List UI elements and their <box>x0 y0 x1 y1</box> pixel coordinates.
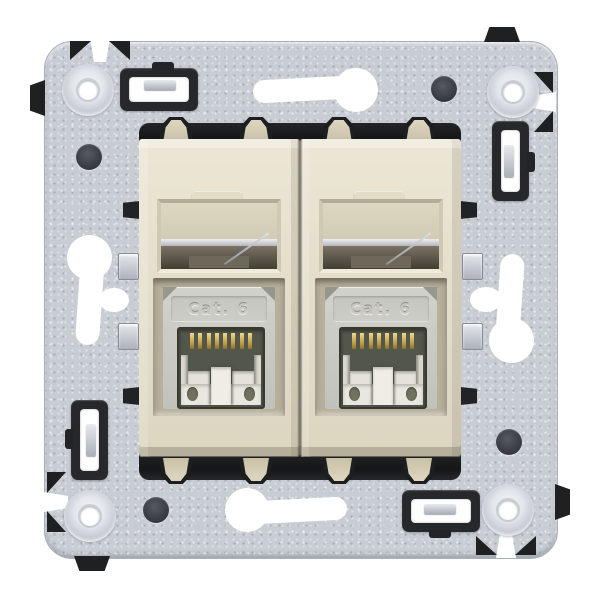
category-band: Cat. 6 <box>333 296 429 322</box>
socket-hole <box>244 387 255 401</box>
claw-triangle <box>109 41 130 60</box>
contact-pin <box>393 333 397 349</box>
screw-hole-bottom-left <box>64 490 116 542</box>
socket-hole <box>406 387 417 401</box>
contact-pin <box>352 333 356 349</box>
side-metal-clip <box>462 323 483 350</box>
screw-hole-center <box>503 82 523 102</box>
side-wedge <box>123 387 140 405</box>
shutter-window <box>319 199 443 273</box>
clip-latch <box>504 145 514 177</box>
contact-pin <box>240 333 244 349</box>
side-wedge <box>460 387 477 405</box>
screw-hole-center <box>80 506 100 526</box>
rubber-bumper <box>496 429 522 455</box>
shutter-cavity <box>161 246 277 269</box>
dust-shutter-flap <box>323 203 439 239</box>
clip-nub <box>527 152 535 172</box>
claw-triangle <box>476 536 497 555</box>
fixing-claw <box>159 458 193 484</box>
clip-frame-top-left <box>120 68 198 111</box>
side-wedge <box>460 201 477 219</box>
edge-tab-right <box>555 484 570 520</box>
screw-hole-center <box>498 500 518 520</box>
clip-nub <box>65 429 73 449</box>
contact-pin <box>248 333 252 349</box>
rubber-bumper <box>143 497 169 523</box>
claw-triangle <box>70 41 91 60</box>
corner-claw-notch-bottom-right <box>476 534 536 558</box>
latch-channel <box>373 367 393 405</box>
gold-contacts <box>190 333 252 349</box>
category-band: Cat. 6 <box>171 296 267 322</box>
contact-pin <box>377 333 381 349</box>
side-metal-clip <box>118 253 139 280</box>
contact-pin <box>198 333 202 349</box>
claw-triangle <box>47 472 66 493</box>
screw-hole-top-left <box>62 64 114 116</box>
edge-tab-left <box>30 80 45 116</box>
fixing-claw <box>239 458 273 484</box>
contact-pin <box>402 333 406 349</box>
contact-pin <box>369 333 373 349</box>
jack-recess: Cat. 6 <box>153 278 285 416</box>
clip-frame-bottom-right <box>402 490 480 532</box>
product-photo-rj45-double-socket: Cat. 6 <box>0 0 600 600</box>
screw-hole-bottom-right <box>482 484 534 536</box>
contact-pin <box>360 333 364 349</box>
edge-tab-top <box>484 27 520 42</box>
rj45-jack-front: Cat. 6 <box>163 287 275 409</box>
dust-shutter-flap <box>161 203 277 239</box>
notch-cutout <box>90 38 110 62</box>
contact-pin <box>385 333 389 349</box>
contact-pin <box>215 333 219 349</box>
keyhole-bulge-left <box>67 235 112 280</box>
side-wedge <box>123 201 140 219</box>
clip-frame-bottom-left <box>71 400 108 480</box>
jack-recess: Cat. 6 <box>315 278 447 416</box>
module-seam <box>297 139 303 457</box>
claw-triangle <box>515 536 536 555</box>
category-label: Cat. 6 <box>188 300 250 318</box>
shutter-cavity <box>323 246 439 269</box>
rj45-socket-opening <box>339 327 427 409</box>
keyhole-bulge-right <box>489 318 534 363</box>
latch-channel <box>211 367 231 405</box>
screw-hole-center <box>78 80 98 100</box>
rj45-jack-front: Cat. 6 <box>325 287 437 409</box>
rubber-bumper <box>431 76 457 102</box>
notch-cutout <box>496 534 516 558</box>
screw-hole-top-right <box>487 66 539 118</box>
edge-tab-bottom <box>74 556 110 571</box>
side-metal-clip <box>462 253 483 280</box>
keyhole-bulge-bottom <box>225 488 269 532</box>
side-metal-clip <box>118 323 139 350</box>
contact-pin <box>223 333 227 349</box>
clip-latch <box>424 504 456 514</box>
cavity-block <box>351 256 411 268</box>
clip-latch <box>144 80 176 90</box>
contact-pin <box>190 333 194 349</box>
oval-hole-right <box>470 287 502 312</box>
oval-hole-left <box>99 288 129 312</box>
claw-triangle <box>534 111 553 132</box>
contact-pin <box>231 333 235 349</box>
fixing-claw <box>402 458 436 484</box>
contact-pin <box>207 333 211 349</box>
cavity-block <box>189 256 249 268</box>
category-label: Cat. 6 <box>350 300 412 318</box>
gold-contacts <box>352 333 414 349</box>
keyhole-bulge-top <box>334 68 378 112</box>
clip-latch <box>86 424 96 456</box>
clip-frame-top-right <box>492 121 529 201</box>
rubber-bumper <box>76 144 102 170</box>
clip-nub <box>429 530 451 538</box>
socket-hole <box>349 387 360 401</box>
clip-nub <box>152 62 174 70</box>
socket-hole <box>187 387 198 401</box>
contact-pin <box>410 333 414 349</box>
rj45-socket-opening <box>177 327 265 409</box>
fixing-claw <box>322 458 356 484</box>
corner-claw-notch-top-left <box>70 38 130 62</box>
shutter-window <box>157 199 281 273</box>
